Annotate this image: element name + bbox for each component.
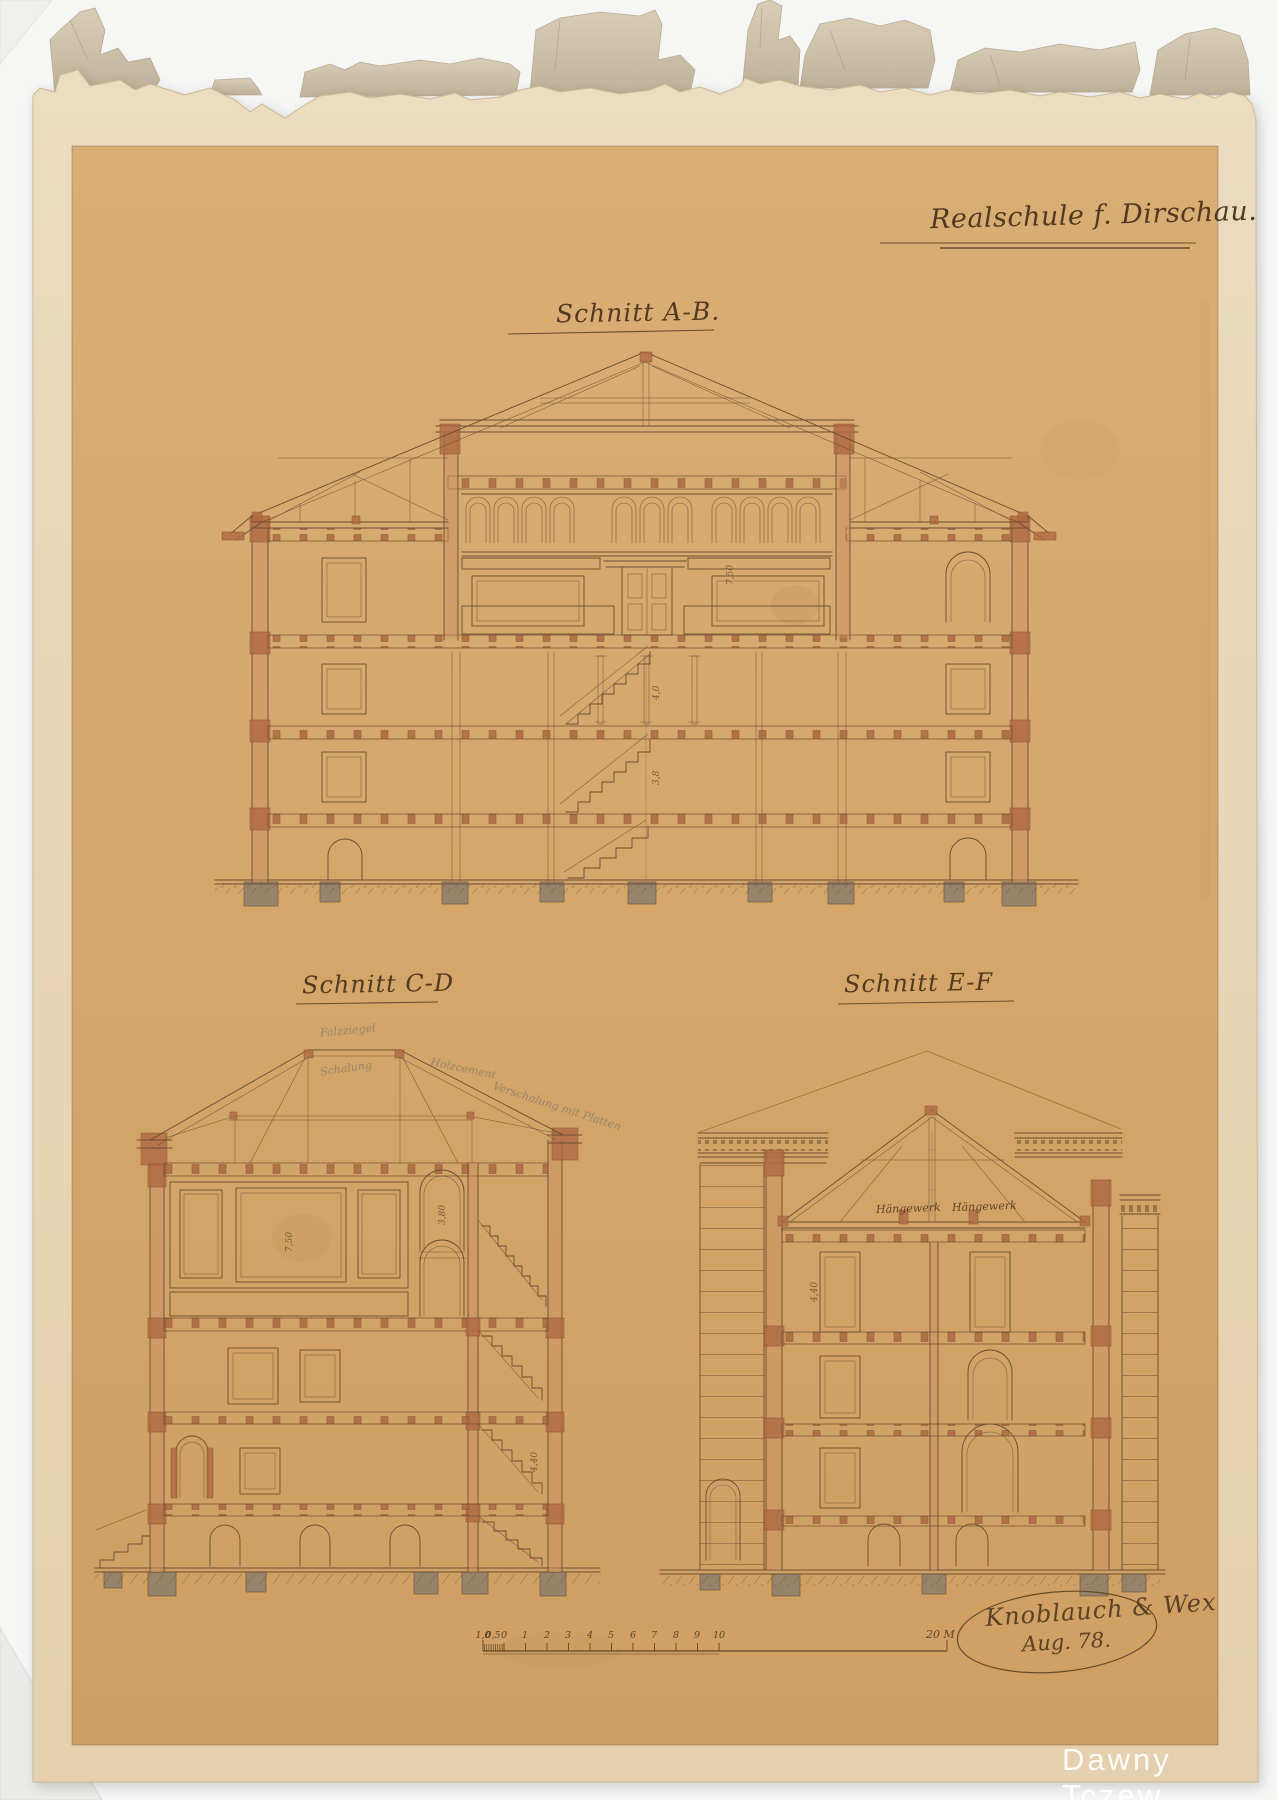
scale-end-label: 20 M (926, 1628, 955, 1641)
dim-cd-panel: 7,50 (285, 1232, 295, 1252)
scale-tick-label: 5 (608, 1630, 614, 1641)
haengewerk-label-left: Hängewerk (876, 1201, 941, 1216)
drawing-canvas (0, 0, 1277, 1800)
scale-tick-label: 4 (587, 1630, 593, 1641)
scale-tick-label: 7 (651, 1630, 657, 1641)
section-ef-title: Schnitt E-F (844, 968, 994, 999)
dim-ab-mid-lower: 3,8 (652, 771, 662, 785)
dim-ef-left: 4,40 (810, 1282, 820, 1302)
scale-tick-label: 8 (673, 1630, 679, 1641)
dim-cd-corridor: 3,80 (438, 1205, 448, 1225)
scale-tick-label: 10 (713, 1630, 725, 1641)
scale-tick-label: 2 (544, 1630, 550, 1641)
scale-tick-label: 0,5 (485, 1630, 500, 1641)
watermark: Dawny Tczew (1062, 1742, 1277, 1800)
scale-tick-label: 3 (565, 1630, 571, 1641)
scale-tick-label: 0 (501, 1630, 507, 1641)
torn-fragments (50, 0, 1250, 97)
scale-tick-label: 9 (694, 1630, 700, 1641)
section-cd-title: Schnitt C-D (302, 969, 455, 1000)
signature-date: Aug. 78. (1021, 1628, 1111, 1657)
scale-tick-label: 6 (630, 1630, 636, 1641)
haengewerk-label-right: Hängewerk (952, 1199, 1017, 1214)
dim-cd-stairs: 4,40 (530, 1452, 540, 1472)
scale-tick-label: 1 (522, 1630, 528, 1641)
dim-ab-mid-upper: 4,0 (652, 686, 662, 700)
section-ab-title: Schnitt A-B. (556, 297, 721, 329)
dim-ab-right: 7,50 (726, 565, 736, 585)
scanned-drawing-page: Realschule f. Dirschau. Schnitt A-B. Sch… (0, 0, 1277, 1800)
